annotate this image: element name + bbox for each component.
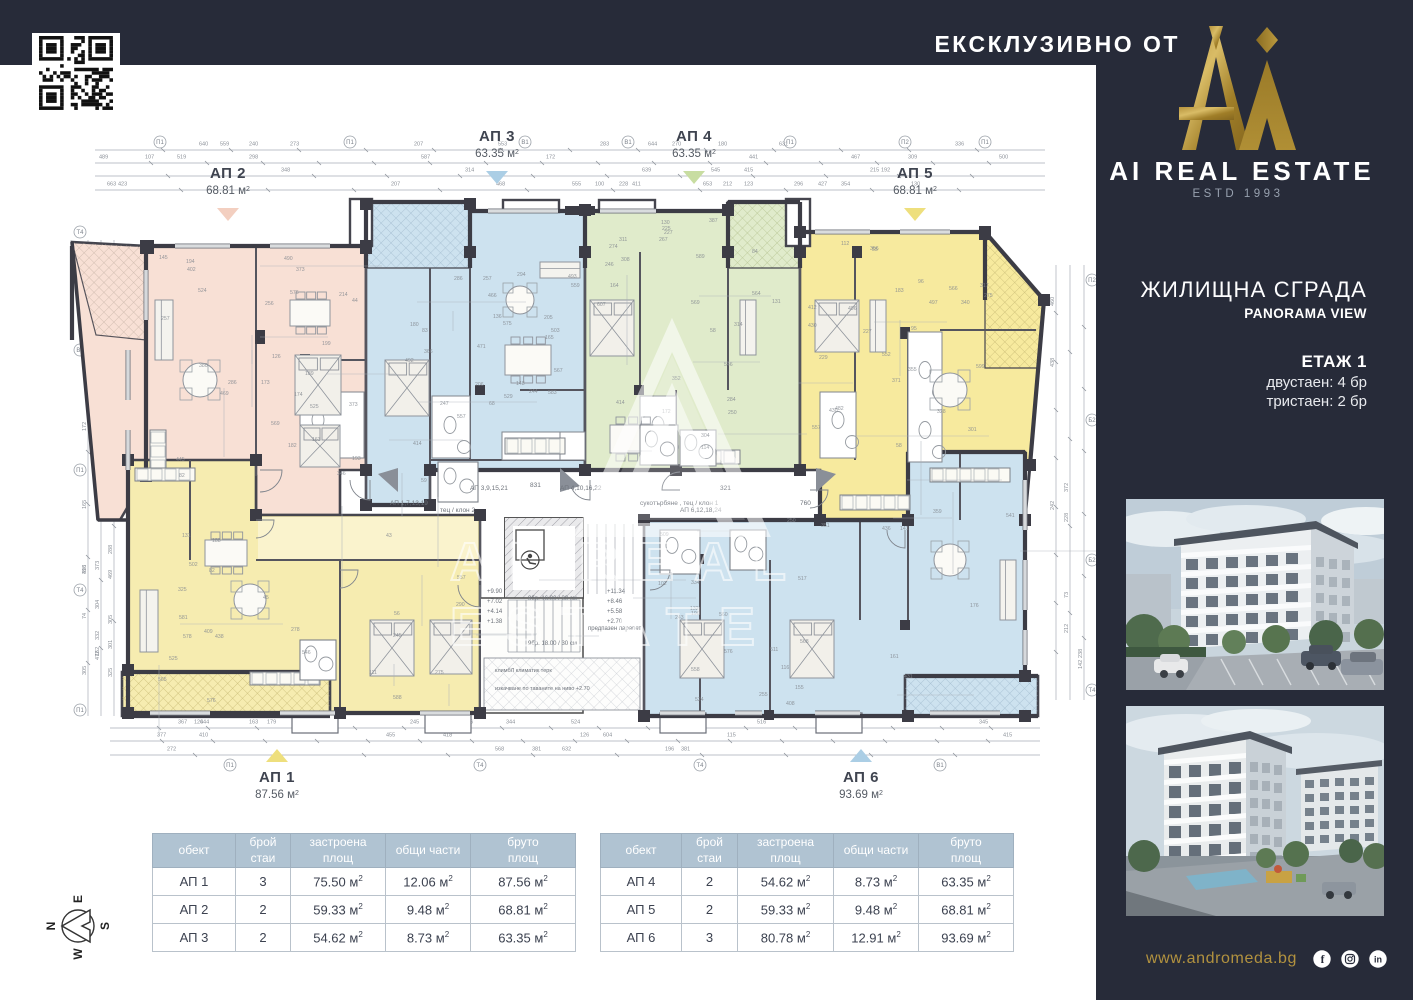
svg-text:П1: П1 [981,140,989,146]
svg-text:П2: П2 [1088,278,1096,284]
svg-text:Б2: Б2 [1088,558,1096,564]
svg-text:583: 583 [548,390,557,396]
svg-text:123: 123 [744,182,753,188]
svg-text:355: 355 [908,367,917,373]
svg-text:502: 502 [189,562,198,568]
svg-text:199: 199 [322,341,331,347]
svg-text:524: 524 [571,720,580,726]
svg-text:415: 415 [1003,733,1012,739]
svg-text:ESTATE: ESTATE [450,597,775,657]
svg-text:126: 126 [272,354,281,360]
svg-text:227: 227 [664,230,673,236]
svg-text:275: 275 [984,293,993,299]
svg-text:409: 409 [204,629,213,635]
svg-text:304: 304 [95,600,101,609]
svg-text:59: 59 [421,478,427,484]
svg-text:274: 274 [609,244,618,250]
svg-text:576: 576 [207,698,216,704]
svg-text:524: 524 [695,697,704,703]
svg-text:250: 250 [787,518,796,524]
svg-text:410: 410 [199,733,208,739]
svg-text:112: 112 [841,241,849,247]
svg-text:Т4: Т4 [76,230,84,236]
svg-text:Б2: Б2 [1088,418,1096,424]
svg-text:288: 288 [108,545,114,554]
svg-text:557: 557 [812,425,821,431]
svg-text:301: 301 [968,427,977,433]
svg-text:68.81 м2: 68.81 м2 [893,185,937,197]
svg-text:469: 469 [108,570,114,579]
svg-text:212: 212 [723,182,732,188]
svg-text:524: 524 [198,288,207,294]
svg-text:414: 414 [616,400,625,406]
svg-text:Т4: Т4 [76,588,84,594]
svg-text:162: 162 [95,647,101,656]
svg-text:68.81 м2: 68.81 м2 [206,185,250,197]
svg-text:В1: В1 [521,140,529,146]
svg-text:245: 245 [410,720,419,726]
svg-text:566: 566 [949,286,958,292]
svg-text:305: 305 [108,615,114,624]
svg-text:455: 455 [386,733,395,739]
svg-text:227: 227 [863,329,872,335]
svg-text:519: 519 [177,155,186,161]
svg-text:255: 255 [759,692,768,698]
svg-text:АП 4: АП 4 [676,128,712,145]
svg-text:изкачване по таваните на ниво: изкачване по таваните на ниво +2.70 [495,686,590,692]
svg-text:131: 131 [772,299,781,305]
svg-text:516: 516 [757,720,766,726]
svg-text:116: 116 [781,665,789,671]
svg-text:205: 205 [544,315,553,321]
svg-text:246: 246 [605,262,614,268]
svg-text:82: 82 [179,473,185,479]
svg-text:412: 412 [808,305,817,311]
svg-text:83: 83 [422,328,428,334]
svg-text:172: 172 [546,155,555,161]
svg-text:П2: П2 [901,140,909,146]
svg-text:490: 490 [284,256,293,262]
svg-text:96: 96 [918,279,924,285]
svg-text:348: 348 [281,168,290,174]
svg-text:115: 115 [727,733,736,739]
svg-text:130: 130 [661,220,670,226]
svg-text:831: 831 [530,482,541,489]
svg-text:414: 414 [413,441,422,447]
svg-text:503: 503 [551,328,560,334]
svg-text:257: 257 [483,276,492,282]
svg-text:58: 58 [710,328,716,334]
svg-text:П1: П1 [156,140,164,146]
svg-text:136: 136 [493,314,502,320]
svg-text:ESTD 1993: ESTD 1993 [1193,188,1284,200]
svg-text:575: 575 [503,321,512,327]
svg-text:525: 525 [169,656,178,662]
svg-text:275: 275 [435,670,444,676]
svg-text:f: f [1321,954,1325,966]
svg-text:581: 581 [179,615,188,621]
svg-text:497: 497 [929,300,938,306]
svg-text:84: 84 [752,249,758,255]
svg-text:496: 496 [848,306,857,312]
svg-text:438: 438 [215,634,224,640]
svg-text:309: 309 [908,155,917,161]
svg-text:244: 244 [529,389,538,395]
svg-text:371: 371 [892,378,901,384]
svg-text:328: 328 [937,409,946,415]
svg-text:398: 398 [82,565,88,574]
svg-text:183: 183 [895,288,904,294]
svg-text:240: 240 [249,142,258,148]
svg-text:73: 73 [1064,592,1070,598]
svg-text:525: 525 [310,404,319,410]
svg-text:411: 411 [632,182,641,188]
svg-text:565: 565 [158,677,167,683]
svg-text:273: 273 [290,142,299,148]
svg-text:тец / клон 2: тец / клон 2 [440,507,475,514]
svg-text:107: 107 [145,155,154,161]
svg-text:467: 467 [851,155,860,161]
svg-text:568: 568 [495,747,504,753]
svg-text:336: 336 [955,142,964,148]
svg-text:207: 207 [391,182,400,188]
svg-text:214: 214 [339,292,348,298]
svg-text:305: 305 [82,666,88,675]
svg-text:639: 639 [642,168,651,174]
svg-text:AI REAL ESTATE: AI REAL ESTATE [1109,156,1374,186]
svg-text:165: 165 [82,500,88,509]
svg-text:558: 558 [691,667,700,673]
svg-text:АП 3,9,15,21: АП 3,9,15,21 [470,485,508,492]
svg-text:308: 308 [621,257,630,263]
svg-text:173: 173 [261,380,270,386]
svg-text:58: 58 [896,443,902,449]
svg-text:356: 356 [870,246,879,252]
svg-text:317: 317 [980,283,989,289]
svg-text:229: 229 [819,355,828,361]
svg-text:344: 344 [506,720,515,726]
svg-text:314: 314 [734,322,743,328]
svg-text:142: 142 [1078,660,1084,669]
svg-text:402: 402 [187,267,196,273]
svg-text:438: 438 [1050,358,1056,367]
svg-text:325: 325 [178,587,187,593]
svg-text:207: 207 [414,142,423,148]
svg-text:228: 228 [1064,513,1070,522]
svg-text:372: 372 [1064,483,1070,492]
svg-text:663: 663 [107,182,116,188]
svg-text:Т4: Т4 [696,763,704,769]
svg-text:423: 423 [118,182,127,188]
svg-text:В1: В1 [936,763,944,769]
svg-text:164: 164 [610,283,619,289]
svg-text:124: 124 [194,720,203,726]
svg-text:340: 340 [961,300,970,306]
svg-text:471: 471 [477,344,486,350]
svg-text:климбЛ климатик терк: климбЛ климатик терк [495,668,552,674]
svg-text:332: 332 [95,631,101,640]
svg-text:АП 6: АП 6 [843,769,879,786]
svg-text:559: 559 [571,283,580,289]
svg-text:599: 599 [976,364,985,370]
svg-text:381: 381 [681,747,690,753]
svg-text:569: 569 [691,300,700,306]
svg-text:373: 373 [95,561,101,570]
svg-text:569: 569 [271,421,280,427]
svg-text:380: 380 [199,363,208,369]
svg-text:314: 314 [465,168,474,174]
svg-text:141: 141 [900,526,909,532]
svg-text:145: 145 [159,255,168,261]
svg-text:П1: П1 [76,708,84,714]
svg-text:359: 359 [933,509,942,515]
svg-text:377: 377 [157,733,166,739]
svg-text:298: 298 [249,155,258,161]
svg-text:286: 286 [454,276,463,282]
svg-text:366: 366 [424,349,433,355]
svg-text:S: S [98,922,112,930]
svg-text:176: 176 [970,603,979,609]
svg-text:П1: П1 [76,468,84,474]
svg-text:AI REAL: AI REAL [450,532,806,592]
svg-text:493: 493 [568,274,577,280]
svg-text:345: 345 [979,720,988,726]
svg-text:760: 760 [800,500,811,507]
svg-text:387: 387 [709,218,718,224]
svg-text:631: 631 [779,142,788,148]
svg-text:272: 272 [167,747,176,753]
svg-text:373: 373 [296,267,305,273]
svg-text:286: 286 [228,380,237,386]
svg-text:529: 529 [504,394,513,400]
svg-text:43: 43 [386,533,392,539]
svg-text:228: 228 [619,182,628,188]
svg-text:415: 415 [744,168,753,174]
svg-text:500: 500 [999,155,1008,161]
svg-text:W: W [71,948,85,960]
svg-text:165: 165 [545,335,554,341]
svg-text:74: 74 [82,613,88,619]
svg-text:587: 587 [421,155,430,161]
svg-text:250: 250 [728,410,737,416]
svg-text:408: 408 [786,701,795,707]
svg-text:N: N [44,922,58,931]
svg-text:131: 131 [182,533,191,539]
svg-text:155: 155 [795,685,804,691]
svg-text:632: 632 [562,747,571,753]
svg-text:469: 469 [220,391,229,397]
svg-text:466: 466 [488,293,497,299]
svg-text:552: 552 [882,352,891,358]
svg-text:182: 182 [288,443,297,449]
svg-text:545: 545 [711,168,720,174]
svg-text:427: 427 [818,182,827,188]
svg-text:284: 284 [727,397,736,403]
svg-text:430: 430 [829,408,838,414]
svg-text:238: 238 [1078,649,1084,658]
svg-text:161: 161 [890,654,899,660]
svg-text:179: 179 [267,720,276,726]
svg-text:189: 189 [305,371,314,377]
svg-text:354: 354 [841,182,850,188]
svg-text:100: 100 [595,182,604,188]
svg-text:63.35 м2: 63.35 м2 [672,148,716,160]
svg-text:242: 242 [1050,501,1056,510]
svg-text:П1: П1 [346,140,354,146]
svg-text:Т4: Т4 [476,763,484,769]
svg-text:АП 5: АП 5 [897,165,933,182]
svg-text:431: 431 [904,674,913,680]
svg-text:381: 381 [532,747,541,753]
svg-text:367: 367 [178,720,187,726]
svg-text:196: 196 [665,747,674,753]
svg-text:546: 546 [724,362,733,368]
svg-text:АП 1: АП 1 [259,769,295,786]
svg-text:194: 194 [186,259,195,265]
svg-text:296: 296 [794,182,803,188]
svg-text:559: 559 [220,142,229,148]
svg-text:555: 555 [572,182,581,188]
svg-text:192: 192 [881,168,890,174]
svg-text:430: 430 [808,323,817,329]
svg-text:63.35 м2: 63.35 м2 [475,148,519,160]
svg-text:93.69 м2: 93.69 м2 [839,789,883,801]
svg-text:Т4: Т4 [1088,688,1096,694]
svg-text:283: 283 [600,142,609,148]
svg-text:В1: В1 [624,140,632,146]
svg-text:311: 311 [619,237,627,243]
svg-text:346: 346 [337,471,346,477]
svg-text:489: 489 [99,155,108,161]
svg-text:in: in [1374,954,1382,964]
svg-text:267: 267 [659,237,668,243]
svg-text:245: 245 [393,633,402,639]
svg-text:588: 588 [393,695,402,701]
svg-text:82: 82 [209,568,215,574]
svg-text:206: 206 [475,382,484,388]
svg-text:180: 180 [718,142,727,148]
svg-text:172: 172 [82,422,88,431]
svg-text:АП 3: АП 3 [479,128,515,145]
svg-text:87.56 м2: 87.56 м2 [255,789,299,801]
svg-text:E: E [71,895,85,903]
svg-text:174: 174 [294,392,303,398]
svg-text:576: 576 [290,290,299,296]
svg-text:257: 257 [161,316,170,322]
svg-text:163: 163 [312,437,321,443]
svg-text:126: 126 [580,733,589,739]
svg-text:607: 607 [597,302,606,308]
svg-text:460: 460 [1050,297,1056,306]
svg-text:44: 44 [352,298,358,304]
svg-text:256: 256 [265,301,274,307]
svg-text:АП 2: АП 2 [210,165,246,182]
svg-text:445: 445 [176,457,185,463]
svg-text:56: 56 [394,611,400,617]
svg-text:215: 215 [870,168,879,174]
svg-text:568: 568 [800,639,809,645]
svg-text:193: 193 [352,456,361,462]
svg-text:294: 294 [517,272,526,278]
svg-text:45: 45 [263,595,269,601]
svg-text:148: 148 [516,381,525,387]
svg-text:589: 589 [696,254,705,260]
svg-text:301: 301 [108,640,114,649]
svg-text:567: 567 [554,368,563,374]
svg-text:492: 492 [405,358,414,364]
svg-text:АП 1,7,13,19: АП 1,7,13,19 [390,500,428,507]
svg-text:278: 278 [291,627,300,633]
svg-text:351: 351 [821,523,830,529]
svg-text:180: 180 [410,322,419,328]
svg-text:111: 111 [369,670,377,676]
svg-text:325: 325 [108,668,114,677]
svg-text:441: 441 [749,155,758,161]
svg-text:188: 188 [212,538,221,544]
svg-text:546: 546 [302,650,311,656]
svg-text:644: 644 [648,142,657,148]
svg-text:604: 604 [603,733,612,739]
svg-text:436: 436 [882,526,891,532]
svg-text:212: 212 [1064,624,1070,633]
svg-text:95: 95 [911,326,917,332]
svg-text:653: 653 [703,182,712,188]
svg-text:640: 640 [199,142,208,148]
svg-text:П1: П1 [226,763,234,769]
svg-text:373: 373 [349,402,358,408]
svg-text:557: 557 [457,414,466,420]
svg-text:163: 163 [249,720,258,726]
svg-text:578: 578 [183,634,192,640]
svg-text:541: 541 [1006,513,1015,519]
